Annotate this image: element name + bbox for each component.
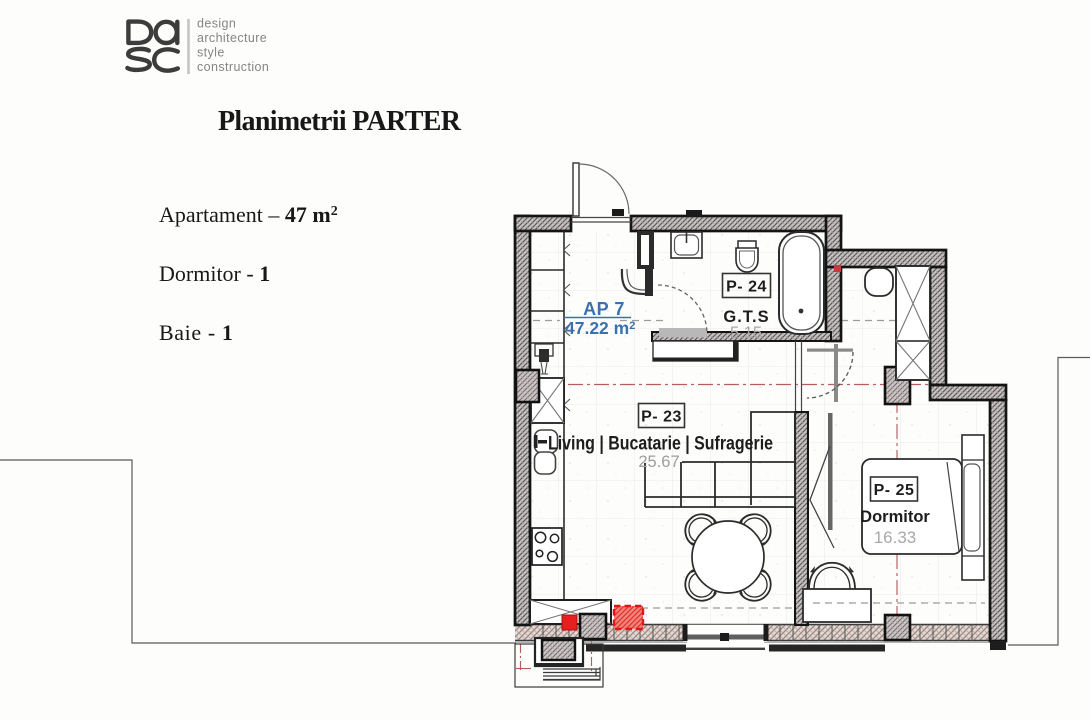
svg-text:25.67: 25.67 bbox=[638, 453, 679, 471]
svg-text:P- 23: P- 23 bbox=[641, 409, 682, 426]
svg-text:47.22 m2: 47.22 m2 bbox=[565, 318, 635, 338]
svg-text:construction: construction bbox=[197, 60, 269, 74]
svg-text:Planimetrii PARTER: Planimetrii PARTER bbox=[218, 106, 462, 137]
svg-text:design: design bbox=[197, 17, 236, 31]
svg-text:Dormitor - 1: Dormitor - 1 bbox=[159, 261, 270, 286]
svg-text:Dormitor: Dormitor bbox=[860, 508, 930, 526]
svg-text:5.15: 5.15 bbox=[730, 324, 762, 342]
svg-text:16.33: 16.33 bbox=[874, 528, 917, 547]
svg-text:Baie - 1: Baie - 1 bbox=[159, 320, 233, 345]
svg-text:P- 25: P- 25 bbox=[874, 482, 915, 499]
svg-text:Apartament – 47 m2: Apartament – 47 m2 bbox=[159, 202, 338, 227]
svg-text:architecture: architecture bbox=[197, 31, 267, 45]
svg-text:AP 7: AP 7 bbox=[583, 299, 625, 319]
svg-text:P- 24: P- 24 bbox=[726, 279, 767, 296]
svg-text:style: style bbox=[197, 46, 225, 60]
svg-text:Living | Bucatarie | Sufrageri: Living | Bucatarie | Sufragerie bbox=[548, 434, 773, 455]
